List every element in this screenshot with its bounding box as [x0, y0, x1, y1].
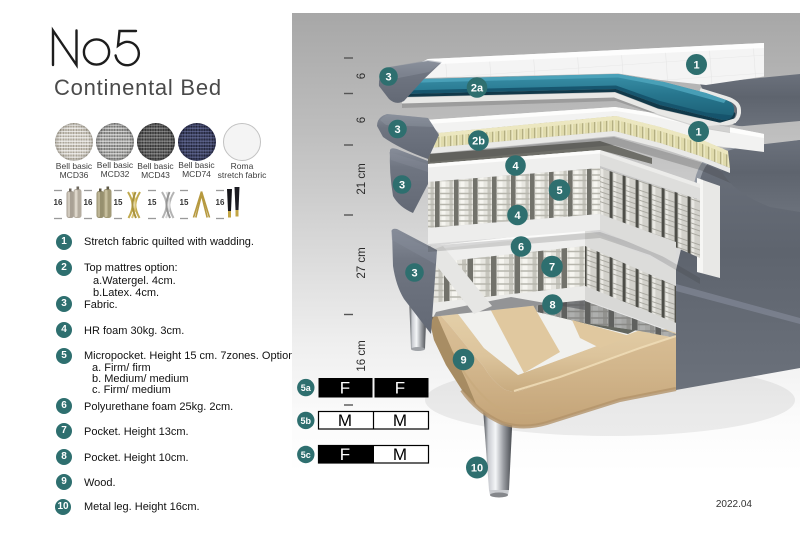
- svg-text:F: F: [395, 379, 405, 398]
- svg-text:2a: 2a: [471, 83, 484, 95]
- svg-text:7: 7: [549, 262, 555, 274]
- svg-text:8: 8: [549, 300, 555, 312]
- svg-text:F: F: [340, 445, 350, 464]
- svg-text:5: 5: [556, 185, 562, 197]
- svg-text:27 cm: 27 cm: [356, 247, 368, 278]
- svg-text:3: 3: [411, 268, 417, 280]
- svg-text:3: 3: [399, 180, 405, 192]
- svg-text:4: 4: [512, 161, 519, 173]
- svg-text:21 cm: 21 cm: [356, 163, 368, 194]
- svg-text:5a: 5a: [301, 383, 312, 393]
- svg-text:16: 16: [54, 198, 63, 207]
- svg-text:F: F: [340, 379, 350, 398]
- svg-text:6: 6: [356, 73, 368, 79]
- svg-text:2022.04: 2022.04: [716, 499, 753, 510]
- svg-text:10: 10: [471, 463, 483, 475]
- svg-text:1: 1: [695, 127, 701, 139]
- svg-text:2b: 2b: [472, 136, 485, 148]
- svg-text:1: 1: [693, 60, 699, 72]
- svg-text:5c: 5c: [301, 450, 311, 460]
- svg-text:3: 3: [394, 124, 400, 136]
- svg-text:15: 15: [114, 198, 123, 207]
- svg-text:6: 6: [518, 242, 524, 254]
- svg-text:16: 16: [216, 198, 225, 207]
- svg-text:15: 15: [180, 198, 189, 207]
- svg-text:3: 3: [385, 72, 391, 84]
- svg-text:M: M: [393, 445, 407, 464]
- svg-text:4: 4: [514, 210, 521, 222]
- svg-text:9: 9: [460, 355, 466, 367]
- svg-text:5b: 5b: [301, 416, 312, 426]
- svg-text:M: M: [338, 411, 352, 430]
- svg-text:6: 6: [356, 117, 368, 123]
- svg-text:15: 15: [148, 198, 157, 207]
- svg-text:16: 16: [84, 198, 93, 207]
- svg-text:M: M: [393, 411, 407, 430]
- svg-text:16 cm: 16 cm: [356, 340, 368, 371]
